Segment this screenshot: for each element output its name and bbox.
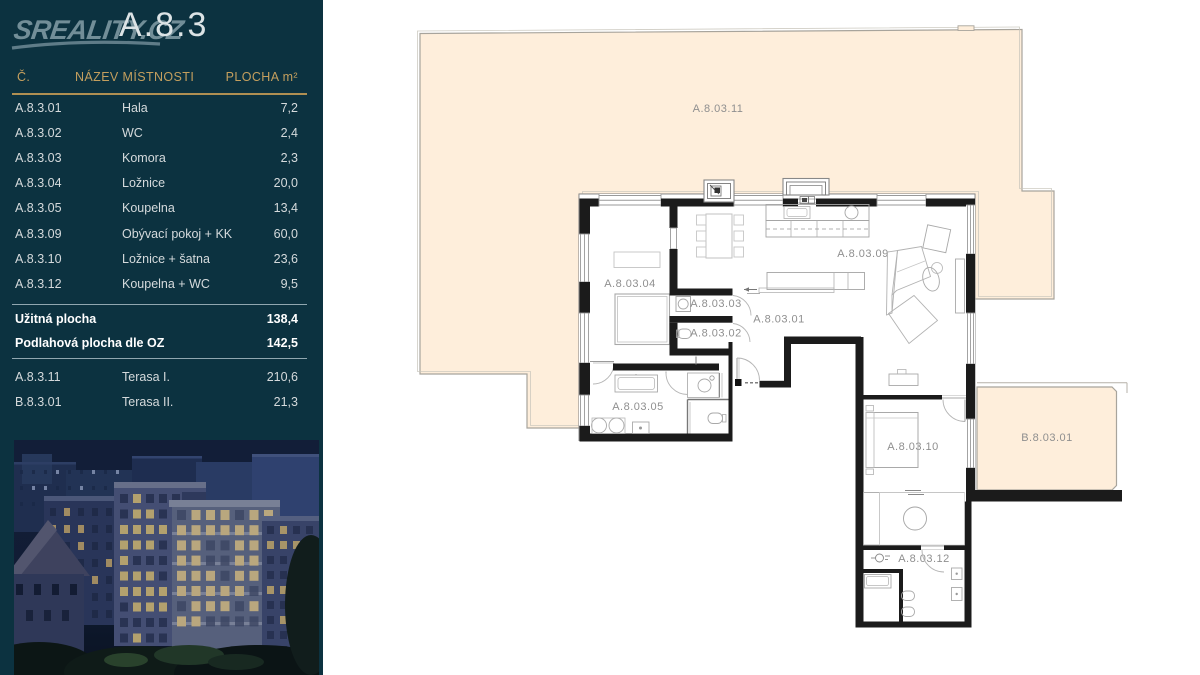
svg-text:A.8.03.02: A.8.03.02 — [690, 328, 742, 340]
svg-text:A.8.03.05: A.8.03.05 — [612, 401, 664, 413]
svg-text:A.8.03.04: A.8.03.04 — [604, 278, 656, 290]
svg-text:A.8.03.01: A.8.03.01 — [753, 314, 805, 326]
svg-text:B.8.03.01: B.8.03.01 — [1021, 432, 1073, 444]
svg-text:A.8.03.03: A.8.03.03 — [690, 298, 742, 310]
svg-text:A.8.03.10: A.8.03.10 — [887, 441, 939, 453]
svg-text:A.8.03.11: A.8.03.11 — [693, 103, 744, 115]
svg-text:A.8.03.09: A.8.03.09 — [837, 248, 889, 260]
